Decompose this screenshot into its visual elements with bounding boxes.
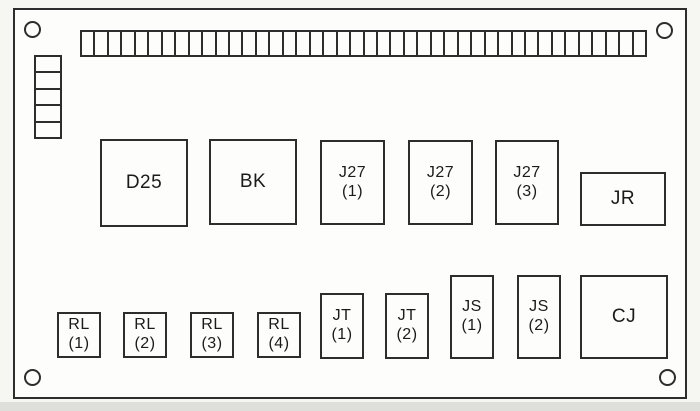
component-sublabel: (2) bbox=[134, 335, 155, 354]
component-label: JT bbox=[398, 307, 417, 326]
terminal-cell bbox=[136, 32, 149, 55]
component-label: J27 bbox=[513, 164, 540, 183]
component-rl-3: RL (3) bbox=[190, 312, 234, 358]
component-label: RL bbox=[68, 316, 89, 335]
terminal-cell bbox=[391, 32, 404, 55]
component-label: J27 bbox=[339, 164, 366, 183]
terminal-cell bbox=[593, 32, 606, 55]
terminal-cell bbox=[365, 32, 378, 55]
terminal-cell bbox=[297, 32, 310, 55]
terminal-cell bbox=[217, 32, 230, 55]
terminal-cell bbox=[405, 32, 418, 55]
component-label: JS bbox=[529, 298, 549, 317]
terminal-cell bbox=[82, 32, 95, 55]
component-jt-1: JT (1) bbox=[320, 293, 364, 359]
mounting-hole-top-left bbox=[24, 21, 41, 38]
terminal-cell bbox=[190, 32, 203, 55]
component-label: D25 bbox=[126, 172, 162, 194]
terminal-cell bbox=[270, 32, 283, 55]
connector-cell bbox=[36, 123, 60, 137]
component-sublabel: (1) bbox=[461, 317, 482, 336]
terminal-cell bbox=[566, 32, 579, 55]
component-label: RL bbox=[201, 316, 222, 335]
scan-edge bbox=[0, 402, 700, 411]
component-label: J27 bbox=[427, 164, 454, 183]
terminal-cell bbox=[459, 32, 472, 55]
terminal-cell bbox=[526, 32, 539, 55]
terminal-cell bbox=[432, 32, 445, 55]
component-sublabel: (2) bbox=[430, 183, 451, 202]
connector-cell bbox=[36, 106, 60, 122]
terminal-cell bbox=[338, 32, 351, 55]
component-sublabel: (2) bbox=[396, 326, 417, 345]
terminal-cell bbox=[311, 32, 324, 55]
mounting-hole-bottom-right bbox=[659, 369, 676, 386]
terminal-cell bbox=[230, 32, 243, 55]
component-label: RL bbox=[268, 316, 289, 335]
component-label: JT bbox=[333, 307, 352, 326]
terminal-cell bbox=[634, 32, 645, 55]
component-js-2: JS (2) bbox=[517, 275, 561, 359]
terminal-cell bbox=[122, 32, 135, 55]
terminal-cell bbox=[203, 32, 216, 55]
terminal-cell bbox=[243, 32, 256, 55]
component-sublabel: (1) bbox=[331, 326, 352, 345]
terminal-cell bbox=[513, 32, 526, 55]
component-label: RL bbox=[134, 316, 155, 335]
terminal-strip bbox=[80, 30, 647, 57]
component-j27-1: J27 (1) bbox=[320, 140, 385, 225]
component-bk: BK bbox=[209, 139, 297, 225]
terminal-cell bbox=[580, 32, 593, 55]
terminal-cell bbox=[149, 32, 162, 55]
terminal-cell bbox=[163, 32, 176, 55]
component-label: JR bbox=[611, 188, 635, 210]
terminal-cell bbox=[378, 32, 391, 55]
terminal-cell bbox=[109, 32, 122, 55]
component-cj: CJ bbox=[580, 275, 668, 359]
connector-cell bbox=[36, 90, 60, 106]
component-jt-2: JT (2) bbox=[385, 293, 429, 359]
component-jr: JR bbox=[580, 172, 666, 226]
terminal-cell bbox=[486, 32, 499, 55]
terminal-cell bbox=[324, 32, 337, 55]
component-j27-3: J27 (3) bbox=[495, 140, 559, 225]
terminal-cell bbox=[607, 32, 620, 55]
component-sublabel: (1) bbox=[68, 335, 89, 354]
terminal-cell bbox=[418, 32, 431, 55]
terminal-cell bbox=[499, 32, 512, 55]
component-sublabel: (4) bbox=[268, 335, 289, 354]
terminal-cell bbox=[95, 32, 108, 55]
mounting-hole-bottom-left bbox=[24, 369, 41, 386]
component-label: JS bbox=[462, 298, 482, 317]
terminal-cell bbox=[257, 32, 270, 55]
component-panel: D25 BK J27 (1) J27 (2) J27 (3) JR RL (1)… bbox=[13, 8, 687, 399]
terminal-cell bbox=[284, 32, 297, 55]
component-rl-2: RL (2) bbox=[123, 312, 167, 358]
component-js-1: JS (1) bbox=[450, 275, 494, 359]
component-label: BK bbox=[240, 171, 266, 193]
component-rl-1: RL (1) bbox=[57, 312, 101, 358]
terminal-cell bbox=[445, 32, 458, 55]
left-connector-block bbox=[34, 55, 62, 139]
connector-cell bbox=[36, 73, 60, 89]
terminal-cell bbox=[553, 32, 566, 55]
component-sublabel: (2) bbox=[528, 317, 549, 336]
mounting-hole-top-right bbox=[656, 22, 673, 39]
terminal-cell bbox=[539, 32, 552, 55]
terminal-cell bbox=[351, 32, 364, 55]
component-j27-2: J27 (2) bbox=[408, 140, 473, 225]
terminal-cell bbox=[620, 32, 633, 55]
component-sublabel: (1) bbox=[342, 183, 363, 202]
terminal-cell bbox=[176, 32, 189, 55]
component-rl-4: RL (4) bbox=[257, 312, 301, 358]
component-sublabel: (3) bbox=[201, 335, 222, 354]
component-d25: D25 bbox=[100, 139, 188, 227]
component-label: CJ bbox=[612, 306, 636, 328]
terminal-cell bbox=[472, 32, 485, 55]
component-sublabel: (3) bbox=[516, 183, 537, 202]
connector-cell bbox=[36, 57, 60, 73]
